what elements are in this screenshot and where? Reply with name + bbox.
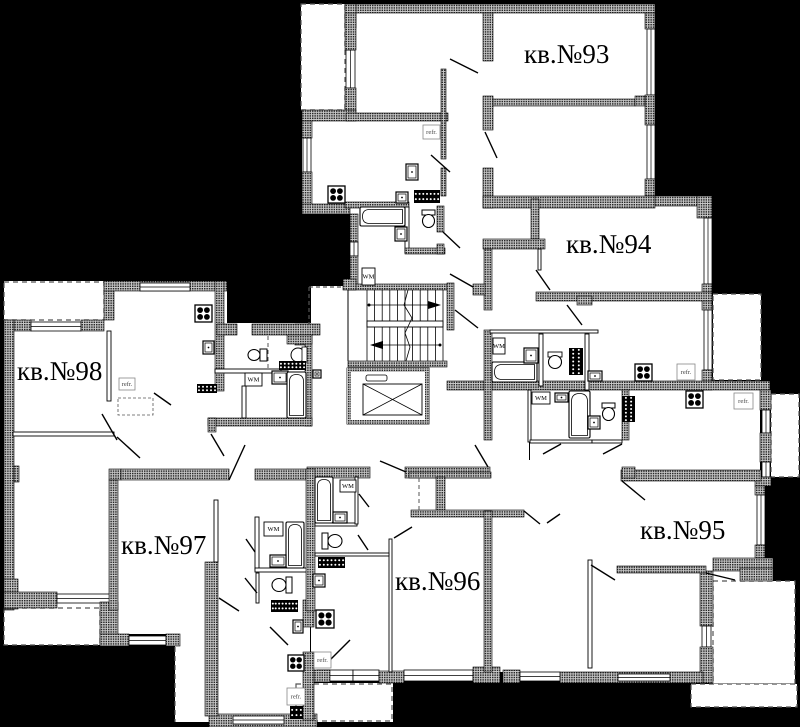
svg-text:WM: WM xyxy=(363,274,375,281)
svg-text:кв.№93: кв.№93 xyxy=(524,39,609,69)
svg-text:refr.: refr. xyxy=(291,694,302,701)
svg-text:кв.№94: кв.№94 xyxy=(566,229,652,259)
svg-text:WM: WM xyxy=(493,343,505,350)
svg-text:refr.: refr. xyxy=(738,398,749,405)
svg-text:WM: WM xyxy=(248,377,260,384)
svg-text:WM: WM xyxy=(535,395,547,402)
svg-text:кв.№97: кв.№97 xyxy=(121,530,206,560)
svg-text:refr.: refr. xyxy=(122,381,133,388)
svg-text:refr.: refr. xyxy=(426,129,437,136)
svg-text:refr.: refr. xyxy=(681,369,692,376)
svg-text:WM: WM xyxy=(268,526,280,533)
svg-text:кв.№96: кв.№96 xyxy=(395,566,480,596)
svg-text:кв.№98: кв.№98 xyxy=(17,356,102,386)
svg-text:WM: WM xyxy=(342,483,354,490)
svg-text:кв.№95: кв.№95 xyxy=(640,515,725,545)
svg-text:refr.: refr. xyxy=(317,657,328,664)
